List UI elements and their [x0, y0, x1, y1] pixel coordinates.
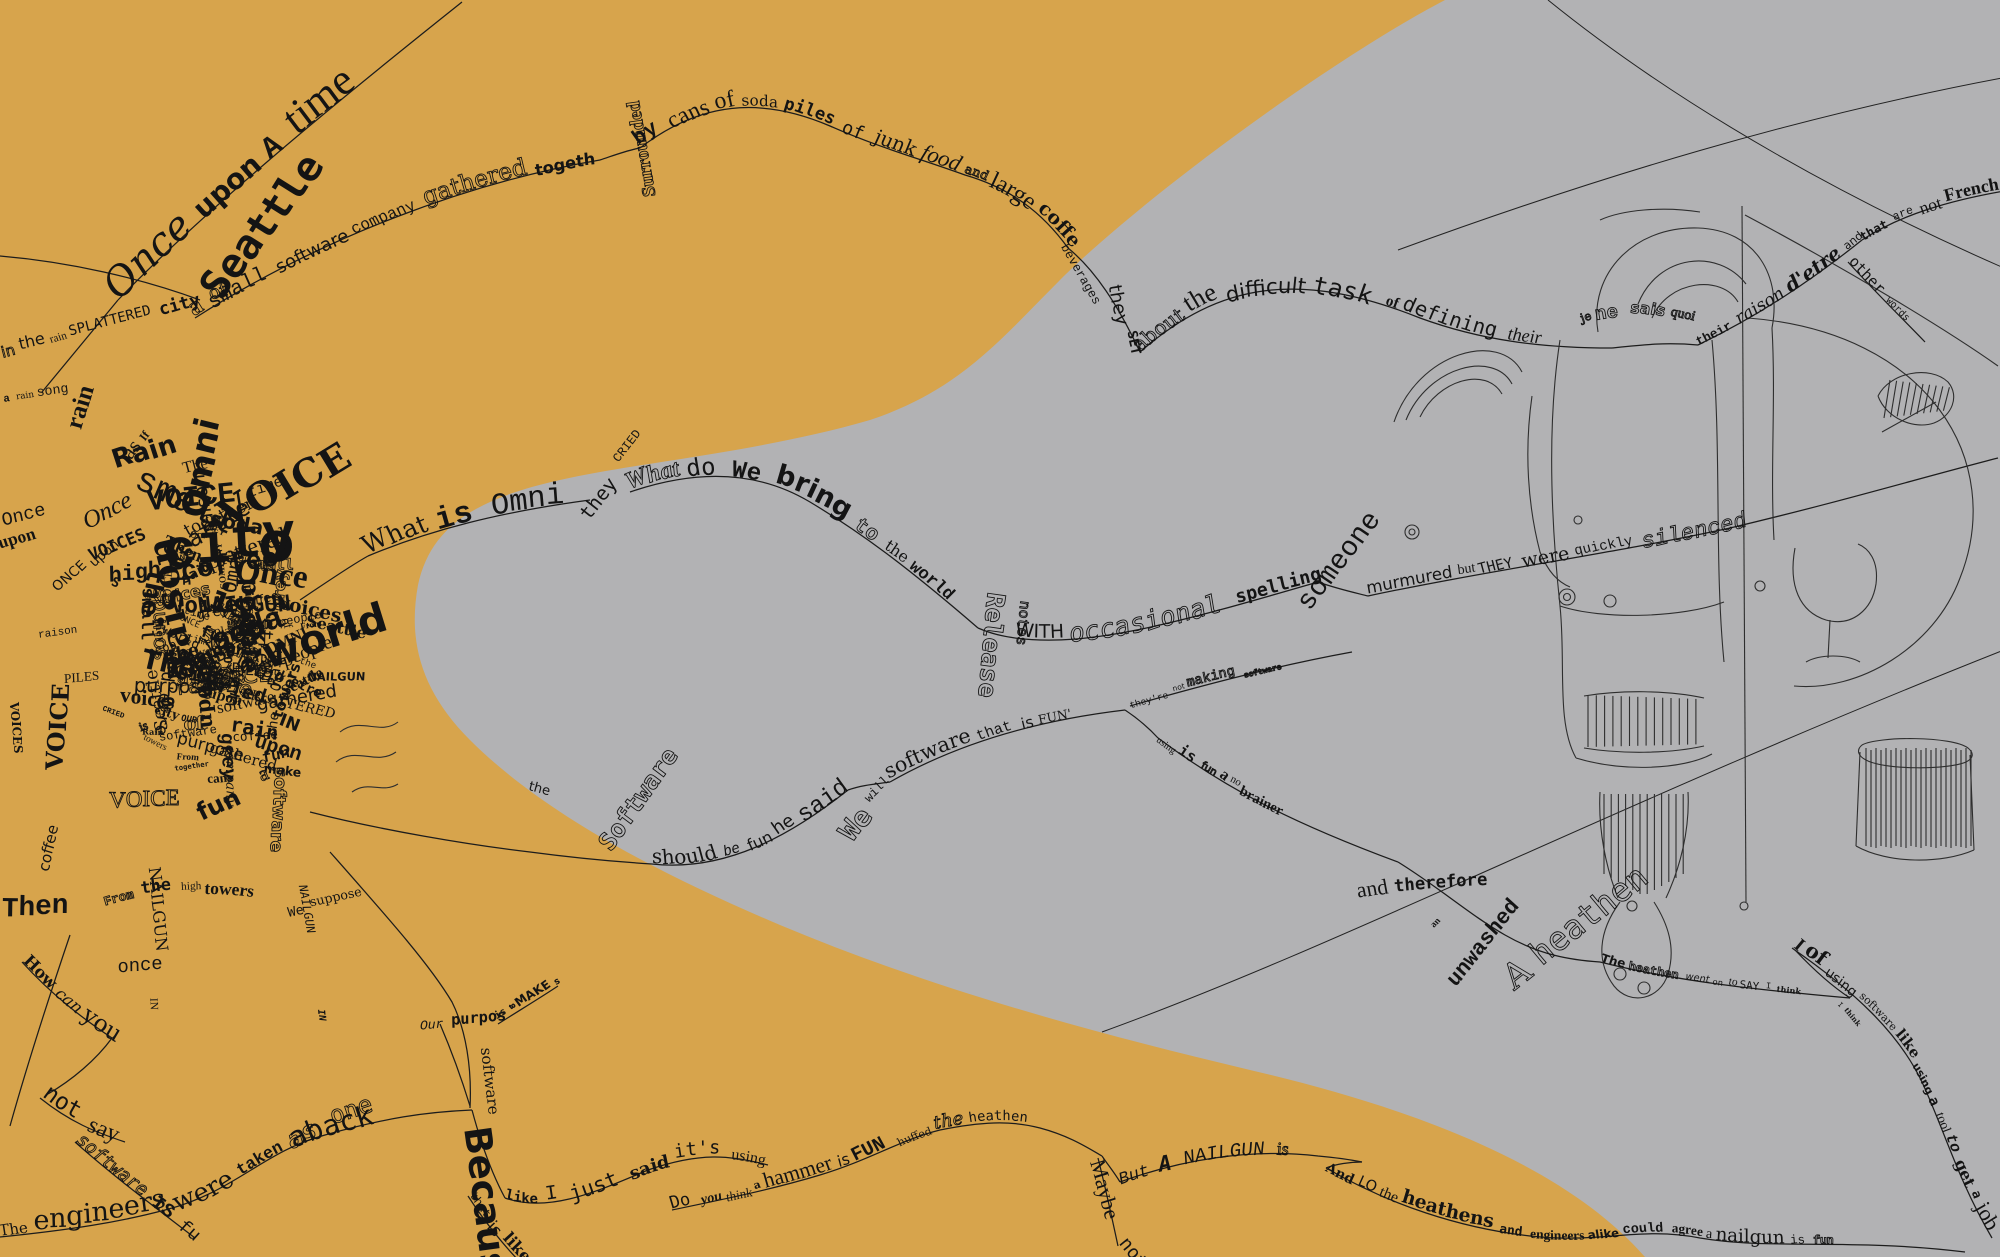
word: From: [176, 752, 202, 763]
word: NAILGUN: [307, 669, 370, 684]
artwork-stage: Once upon A time a small software compan…: [0, 0, 2000, 1257]
word: engineers: [1530, 1226, 1589, 1243]
word: is: [1790, 1233, 1814, 1248]
word: is: [217, 551, 241, 567]
word: fun: [1813, 1234, 1841, 1247]
rotated-word: cans: [206, 769, 236, 786]
word: on: [1712, 978, 1729, 990]
word: ne: [1593, 301, 1629, 326]
artwork-canvas: Once upon A time a small software compan…: [0, 0, 2000, 1257]
word: cans: [206, 769, 236, 786]
word: could: [1622, 1221, 1672, 1238]
rotated-word: is: [217, 551, 241, 567]
word: do: [684, 452, 731, 483]
word: high: [181, 880, 205, 893]
rotated-word: VOICE: [108, 783, 187, 813]
word: VOICE: [108, 783, 187, 813]
word: Our: [420, 1016, 452, 1033]
rotated-word: From: [176, 752, 202, 763]
word: IN: [147, 997, 161, 1014]
rotated-word: IN: [147, 997, 161, 1014]
word: is: [1276, 1138, 1294, 1159]
word: a: [1705, 1226, 1716, 1243]
word: nailgun: [1715, 1224, 1791, 1249]
word: to: [1728, 976, 1742, 989]
word: a: [3, 392, 18, 406]
rotated-word: NAILGUN: [307, 669, 370, 684]
